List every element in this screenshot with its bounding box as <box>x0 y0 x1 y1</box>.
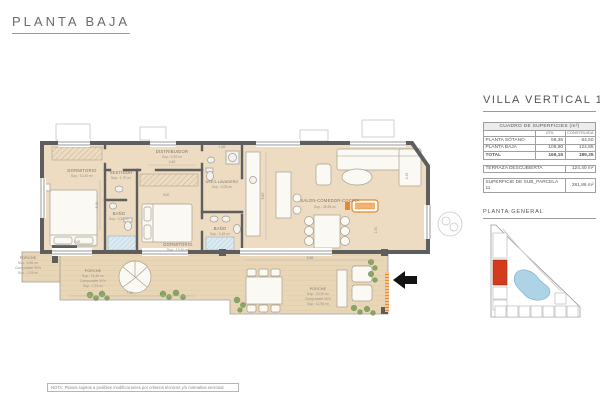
dim-label: 9.40 <box>261 193 265 200</box>
coffee-table <box>342 169 372 185</box>
room-label: VESTIDOR <box>109 170 132 175</box>
row-util: 108,80 <box>535 144 565 152</box>
table-row: PLANTA BAJA 108,80 124,85 <box>484 144 596 152</box>
round-daybed <box>119 261 151 293</box>
room-sup: Sup.: 38,85 m² <box>314 205 337 209</box>
room-label: DORMITORIO <box>67 168 97 173</box>
site-plan-map <box>483 223 593 323</box>
dim-label: 6.88 <box>307 256 314 260</box>
room-label: ASEO-LAVADERO <box>206 180 239 184</box>
sun-loungers <box>337 266 372 307</box>
bed-2 <box>142 204 192 242</box>
armchair <box>316 164 331 185</box>
porch-label: PORCHE <box>20 256 37 260</box>
table-row-total: TOTAL 166,15 189,35 <box>484 152 596 160</box>
porch-sup: Sup.: 5,85 m² <box>18 261 39 265</box>
row-util: 166,15 <box>535 152 565 160</box>
porch-label: PORCHE <box>310 287 327 291</box>
info-panel: VILLA VERTICAL 11 CUADRO DE SUPERFICIES … <box>483 94 596 323</box>
surfaces-table-title: CUADRO DE SUPERFICIES (m²) <box>484 123 596 131</box>
row-construida: 124,85 <box>565 144 595 152</box>
disclaimer-note: NOTA: Planos sujetos a posibles modifica… <box>47 383 239 392</box>
exterior-sills <box>56 120 394 141</box>
dim-label: 3.00 <box>163 193 170 197</box>
dim-label: 4.40 <box>169 160 176 164</box>
room-sup: Sup.: 1,70 m² <box>111 176 132 180</box>
highlighted-plot <box>493 260 507 285</box>
entrance-gate-strip <box>385 272 389 312</box>
porch-computable: Computable 50% <box>305 297 331 301</box>
row-label: PLANTA SÓTANO <box>484 137 536 145</box>
row-label: PLANTA BAJA <box>484 144 536 152</box>
porch-sup: Sup.: 23,90 m² <box>307 292 330 296</box>
porch-sup50: Sup.: 11,95 m² <box>307 302 330 306</box>
dim-label: 1.55 <box>219 145 226 149</box>
dining-table-outdoor <box>246 269 282 312</box>
porch-sup50: Sup.: 7,23 m² <box>83 284 104 288</box>
terraza-value: 124,40 m² <box>566 165 596 173</box>
porch-sup50: Sup.: 2,93 m² <box>18 271 39 275</box>
dim-label: 1.91 <box>374 227 378 234</box>
row-construida: 189,35 <box>565 152 595 160</box>
room-label: BAÑO <box>214 226 227 231</box>
parcela-value: 281,86 m² <box>566 179 596 193</box>
row-construida: 64,50 <box>565 137 595 145</box>
table-row: PLANTA SÓTANO 58,35 64,50 <box>484 137 596 145</box>
porch-label: PORCHE <box>85 269 102 273</box>
room-label: BAÑO <box>113 211 126 216</box>
dim-label: 5.19 <box>95 202 99 209</box>
porch-sup: Sup.: 14,46 m² <box>82 274 105 278</box>
room-sup: Sup.: 13,60 m² <box>167 248 190 252</box>
entrance-arrow-icon <box>393 271 417 289</box>
parcela-row: SUPERFICIE DE SUB_PARCELA 11 281,86 m² <box>483 178 596 193</box>
villa-title: VILLA VERTICAL 11 <box>483 94 596 112</box>
porch-decks <box>22 252 388 314</box>
col-util: ÚTIL <box>535 130 565 137</box>
room-label: SALON-COMEDOR-COCINA <box>300 198 359 203</box>
porch-computable: Computable 50% <box>80 279 106 283</box>
dim-label: 3.00 <box>74 240 81 244</box>
room-sup: Sup.: 4,92 m² <box>162 155 183 159</box>
tree-icon <box>438 212 462 236</box>
row-label: TOTAL <box>484 152 536 160</box>
room-label: DISTRIBUIDOR <box>156 149 188 154</box>
surfaces-table: CUADRO DE SUPERFICIES (m²) ÚTIL CONSTRUI… <box>483 122 596 160</box>
dim-label: 3.19 <box>405 173 409 180</box>
row-util: 58,35 <box>535 137 565 145</box>
room-sup: Sup.: 3,52 m² <box>109 217 130 221</box>
terraza-label: TERRAZA DESCUBIERTA <box>484 165 566 173</box>
room-sup: Sup.: 3,45 m² <box>210 232 231 236</box>
room-label: DORMITORIO <box>163 242 193 247</box>
bed-1 <box>43 184 97 246</box>
dining-table-indoor <box>305 215 350 248</box>
porch-computable: Computable 50% <box>15 266 41 270</box>
terraza-row: TERRAZA DESCUBIERTA 124,40 m² <box>483 165 596 174</box>
site-plan-title: PLANTA GENERAL <box>483 209 596 219</box>
col-construida: CONSTRUIDA <box>565 130 595 137</box>
parcela-label: SUPERFICIE DE SUB_PARCELA 11 <box>484 179 566 193</box>
room-sup: Sup.: 3,05 m² <box>212 185 233 189</box>
dim-label: 7.20 <box>127 291 134 295</box>
room-sup: Sup.: 10,40 m² <box>71 174 94 178</box>
